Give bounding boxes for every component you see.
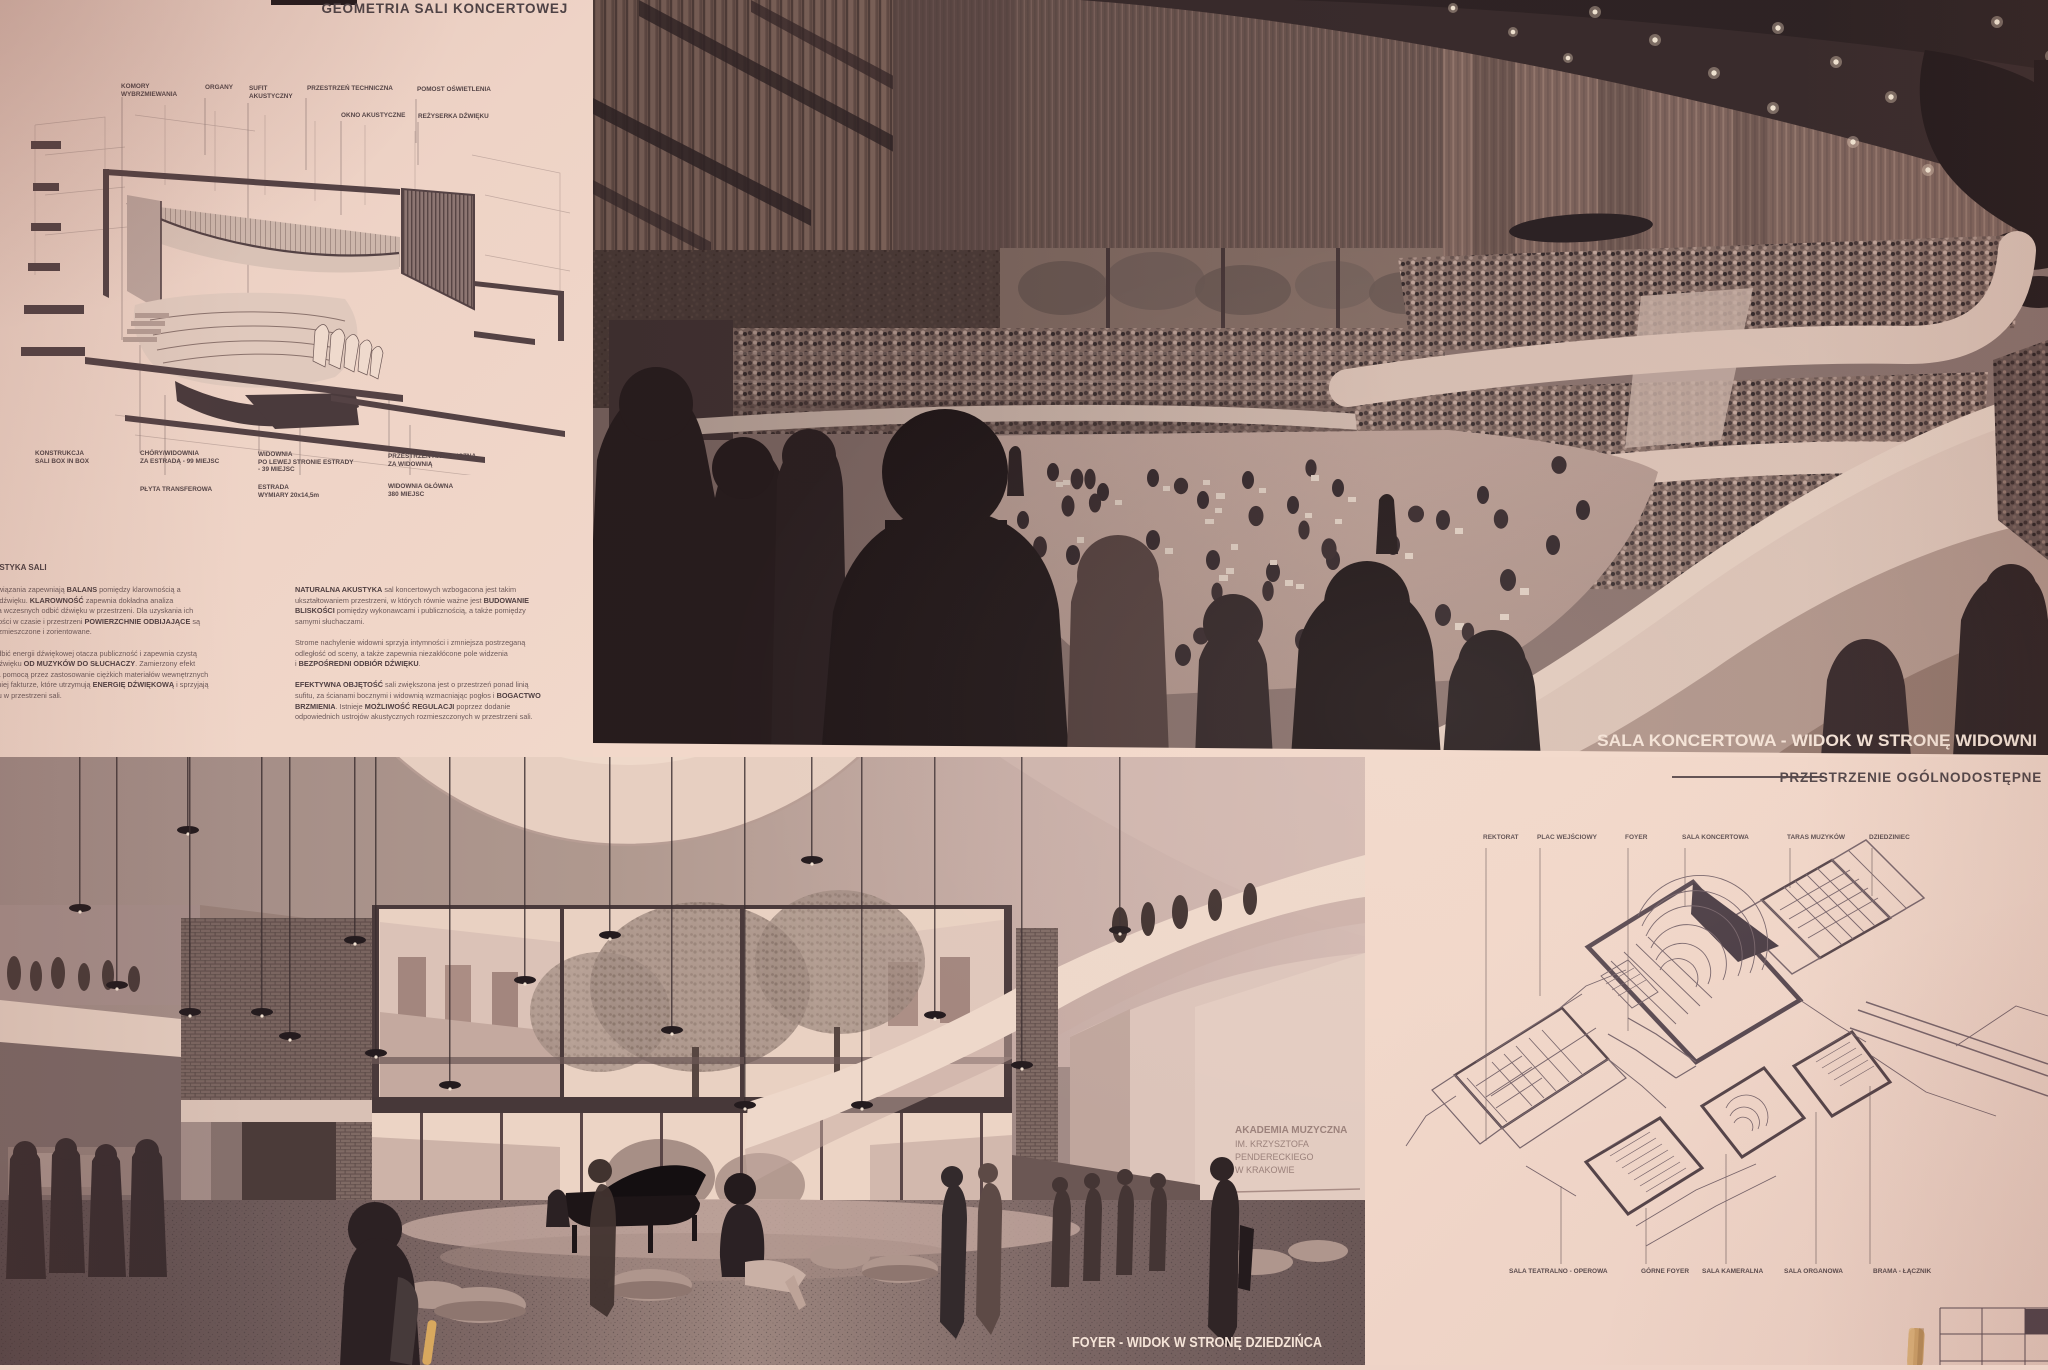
svg-text:IM. KRZYSZTOFA: IM. KRZYSZTOFA bbox=[1235, 1139, 1309, 1149]
svg-text:PENDERECKIEGO: PENDERECKIEGO bbox=[1235, 1152, 1314, 1162]
svg-text:SALA KONCERTOWA - WIDOK W STRO: SALA KONCERTOWA - WIDOK W STRONĘ WIDOWNI bbox=[1597, 731, 2037, 750]
svg-text:AKADEMIA MUZYCZNA: AKADEMIA MUZYCZNA bbox=[1235, 1125, 1347, 1136]
svg-text:FOYER - WIDOK W STRONĘ DZIEDZI: FOYER - WIDOK W STRONĘ DZIEDZIŃCA bbox=[1072, 1334, 1322, 1351]
svg-text:W KRAKOWIE: W KRAKOWIE bbox=[1235, 1165, 1295, 1175]
